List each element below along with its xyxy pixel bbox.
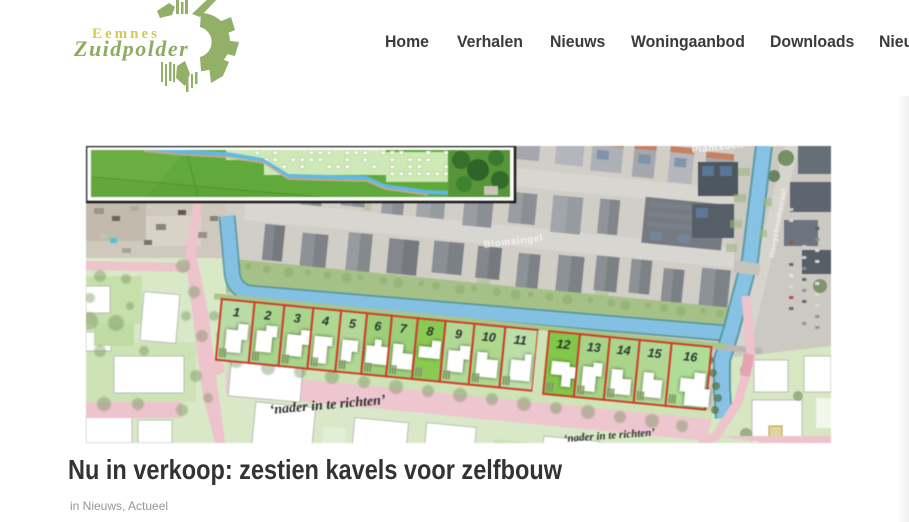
svg-text:9: 9 [454,327,462,342]
svg-text:10: 10 [481,330,496,345]
svg-text:14: 14 [616,343,631,358]
svg-text:12: 12 [556,337,571,352]
svg-text:1: 1 [232,305,240,320]
svg-text:13: 13 [586,340,601,355]
svg-text:3: 3 [293,311,301,326]
svg-text:15: 15 [647,346,663,361]
svg-text:Zuidpolder: Zuidpolder [73,36,189,61]
svg-text:11: 11 [513,333,527,348]
svg-text:8: 8 [426,324,434,339]
svg-text:2: 2 [263,308,272,323]
svg-text:4: 4 [320,314,329,329]
svg-text:16: 16 [683,349,699,364]
